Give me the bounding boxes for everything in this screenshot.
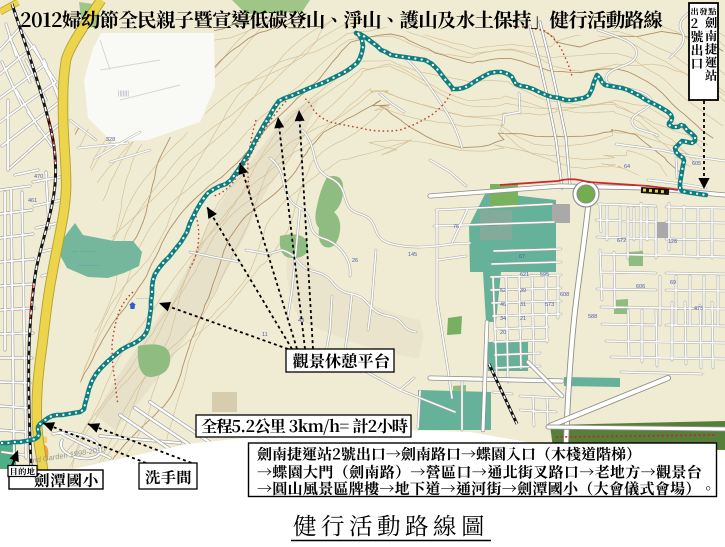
svg-text:573: 573 bbox=[545, 302, 554, 308]
svg-text:128: 128 bbox=[668, 239, 677, 245]
svg-text:..........: .......... bbox=[478, 203, 494, 209]
svg-text:26: 26 bbox=[352, 258, 358, 264]
svg-text:.... ..........: .... .......... bbox=[72, 248, 95, 254]
svg-text:64: 64 bbox=[624, 164, 630, 170]
svg-text:145: 145 bbox=[408, 252, 417, 258]
svg-text:605: 605 bbox=[692, 161, 701, 167]
svg-text:470: 470 bbox=[34, 174, 43, 180]
svg-text:76: 76 bbox=[453, 224, 459, 230]
svg-text:|||||||: ||||||| bbox=[118, 91, 129, 97]
svg-text:595: 595 bbox=[540, 272, 549, 278]
svg-text:69: 69 bbox=[670, 280, 676, 286]
svg-text:..............: .............. bbox=[78, 262, 100, 268]
svg-text:20: 20 bbox=[500, 330, 506, 336]
svg-text:475: 475 bbox=[694, 306, 703, 312]
svg-text:672: 672 bbox=[617, 238, 626, 244]
svg-text:21: 21 bbox=[520, 316, 526, 322]
svg-text:608: 608 bbox=[560, 292, 569, 298]
svg-text:461: 461 bbox=[28, 198, 37, 204]
svg-text:606: 606 bbox=[636, 284, 645, 290]
svg-text:621: 621 bbox=[520, 272, 529, 278]
svg-text:39: 39 bbox=[520, 288, 526, 294]
svg-text:11: 11 bbox=[262, 332, 268, 338]
svg-text:52: 52 bbox=[500, 288, 506, 294]
svg-text:........: ........ bbox=[486, 222, 499, 228]
svg-text:31: 31 bbox=[520, 302, 526, 308]
svg-text:328: 328 bbox=[106, 137, 115, 143]
svg-text:......: ...... bbox=[490, 258, 500, 264]
svg-text:67: 67 bbox=[519, 254, 525, 260]
svg-text:46: 46 bbox=[500, 302, 506, 308]
svg-text:34: 34 bbox=[500, 316, 506, 322]
svg-text:588: 588 bbox=[588, 314, 597, 320]
